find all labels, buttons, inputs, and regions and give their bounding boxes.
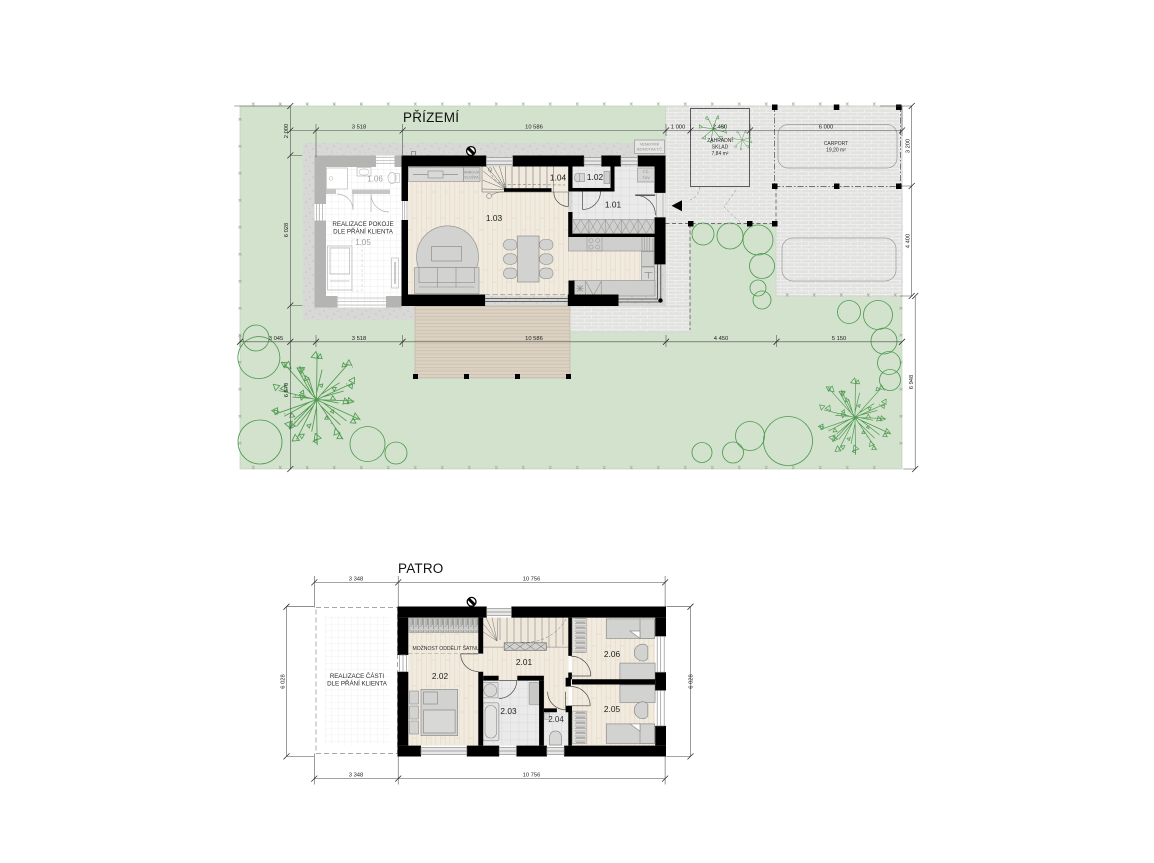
svg-text:REALIZACE ČÁSTI: REALIZACE ČÁSTI: [330, 673, 385, 680]
svg-text:1.02: 1.02: [587, 172, 604, 182]
svg-text:CARPORT: CARPORT: [824, 141, 848, 147]
svg-text:2.03: 2.03: [500, 706, 517, 716]
svg-text:DLE PŘÁNÍ KLIENTA: DLE PŘÁNÍ KLIENTA: [333, 228, 394, 236]
svg-text:10 586: 10 586: [525, 125, 543, 131]
svg-text:3 045: 3 045: [269, 336, 284, 342]
svg-text:6 000: 6 000: [819, 125, 834, 131]
svg-text:6 028: 6 028: [689, 674, 695, 689]
svg-text:1.04: 1.04: [550, 173, 567, 183]
svg-text:2.04: 2.04: [548, 715, 564, 724]
svg-text:1.05: 1.05: [355, 238, 371, 247]
svg-text:2.05: 2.05: [604, 704, 621, 714]
svg-text:2.02: 2.02: [432, 671, 449, 681]
svg-text:3 200: 3 200: [906, 139, 912, 154]
svg-text:3 348: 3 348: [349, 577, 364, 583]
svg-text:1.01: 1.01: [605, 200, 622, 210]
svg-text:19,20 m²: 19,20 m²: [826, 148, 846, 154]
svg-text:SKLAD: SKLAD: [712, 145, 729, 151]
svg-text:1.03: 1.03: [486, 213, 503, 223]
svg-text:10 586: 10 586: [525, 336, 543, 342]
svg-text:DLE PŘÁNÍ KLIENTA: DLE PŘÁNÍ KLIENTA: [327, 680, 388, 688]
svg-text:3 518: 3 518: [352, 336, 367, 342]
svg-text:6 948: 6 948: [909, 375, 915, 390]
svg-text:JEDNOTKA T.Č.: JEDNOTKA T.Č.: [636, 147, 663, 152]
svg-text:2.06: 2.06: [604, 649, 621, 659]
svg-text:6 028: 6 028: [284, 223, 290, 238]
svg-text:10 756: 10 756: [523, 577, 541, 583]
svg-text:3 348: 3 348: [349, 773, 364, 779]
svg-text:PATRO: PATRO: [398, 561, 444, 576]
svg-text:VLOŽKA: VLOŽKA: [464, 175, 479, 180]
svg-text:7,84 m²: 7,84 m²: [712, 151, 729, 157]
svg-text:PŘÍZEMÍ: PŘÍZEMÍ: [403, 110, 459, 125]
svg-text:2.01: 2.01: [516, 657, 533, 667]
svg-text:4 450: 4 450: [714, 336, 729, 342]
svg-text:VENKOVNÍ: VENKOVNÍ: [640, 143, 660, 147]
svg-text:6 570: 6 570: [284, 383, 290, 398]
svg-text:1 000: 1 000: [671, 125, 686, 131]
svg-text:1.06: 1.06: [367, 175, 383, 184]
svg-text:ZAHRADNÍ: ZAHRADNÍ: [707, 137, 733, 144]
svg-text:2 000: 2 000: [284, 124, 290, 139]
svg-text:2 450: 2 450: [713, 125, 728, 131]
svg-text:4 400: 4 400: [906, 234, 912, 249]
svg-text:TUV: TUV: [642, 176, 650, 180]
svg-text:REALIZACE POKOJE: REALIZACE POKOJE: [332, 221, 393, 228]
svg-text:5 150: 5 150: [832, 336, 847, 342]
svg-text:6 028: 6 028: [281, 674, 287, 689]
svg-text:KRBOVÁ: KRBOVÁ: [464, 171, 480, 175]
svg-text:3 518: 3 518: [352, 125, 367, 131]
svg-text:10 756: 10 756: [523, 773, 541, 779]
svg-text:MOŽNOST ODDĚLIT ŠATNU: MOŽNOST ODDĚLIT ŠATNU: [412, 644, 479, 652]
svg-text:T.Č.: T.Č.: [643, 169, 650, 174]
